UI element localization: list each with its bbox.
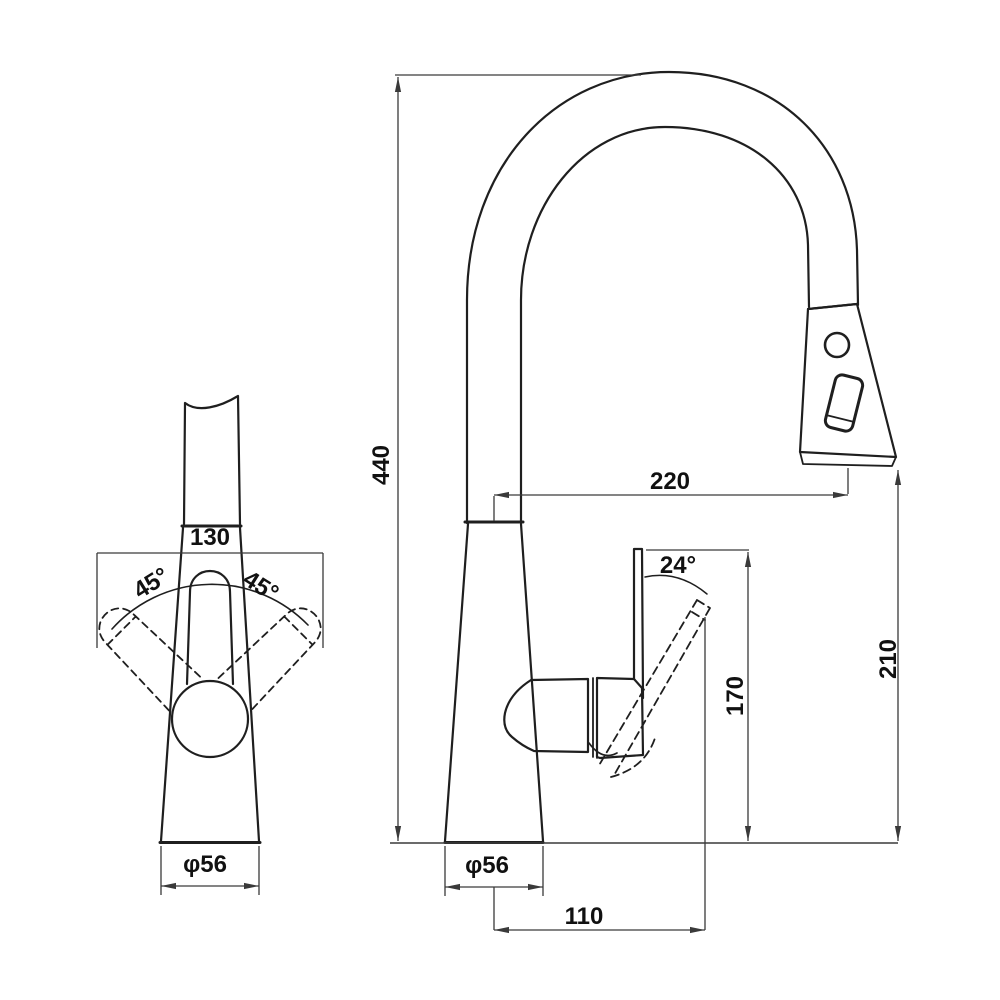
handle-lever-tilted bbox=[598, 600, 710, 777]
spout-height-label: 210 bbox=[875, 639, 902, 679]
dimension-labels: 130 45° 45° φ56 440 220 24° 170 210 φ56 … bbox=[129, 445, 902, 930]
spray-head-switch-outline bbox=[824, 373, 864, 432]
spray-head-button-icon bbox=[825, 333, 849, 357]
front-base-dia-label: φ56 bbox=[183, 851, 227, 878]
spray-head-outline bbox=[800, 304, 896, 457]
handle-height-label: 170 bbox=[722, 676, 749, 716]
handle-lever-upright bbox=[634, 549, 643, 698]
front-handle-swung-right bbox=[218, 598, 330, 710]
handle-angle-label: 24° bbox=[660, 552, 696, 579]
handle-lever-tilted-tip-line bbox=[692, 612, 705, 620]
side-reach-label: 220 bbox=[650, 468, 690, 495]
side-height-label: 440 bbox=[368, 445, 395, 485]
front-handle-neutral bbox=[187, 571, 233, 684]
handle-lever-tilted-outline bbox=[598, 600, 710, 777]
front-spout-tube bbox=[184, 396, 240, 524]
handle-reach-label: 110 bbox=[565, 903, 604, 930]
handle-reach-extensions bbox=[494, 617, 705, 930]
handle-body bbox=[597, 678, 643, 758]
front-view bbox=[89, 396, 331, 843]
side-spout-outer bbox=[467, 72, 858, 523]
spray-head-switch-detail bbox=[828, 415, 853, 421]
handle-cartridge-cap bbox=[504, 679, 588, 752]
side-view bbox=[445, 72, 896, 843]
front-handle-swung-left bbox=[89, 598, 201, 710]
front-width-label: 130 bbox=[190, 524, 230, 551]
front-handle-swung-right-outline bbox=[218, 598, 330, 710]
spray-head-switch bbox=[824, 373, 864, 432]
front-body-cone bbox=[161, 528, 259, 841]
side-base-dia-label: φ56 bbox=[465, 852, 509, 879]
front-handle-ball-joint bbox=[172, 681, 248, 757]
drawing-canvas: 130 45° 45° φ56 440 220 24° 170 210 φ56 … bbox=[0, 0, 1000, 1000]
front-width-dim bbox=[97, 553, 323, 648]
front-handle-swung-left-outline bbox=[89, 598, 201, 710]
front-swing-left-label: 45° bbox=[129, 562, 174, 604]
side-spout-inner bbox=[521, 127, 809, 523]
faucet-technical-drawing: 130 45° 45° φ56 440 220 24° 170 210 φ56 … bbox=[0, 0, 1000, 1000]
